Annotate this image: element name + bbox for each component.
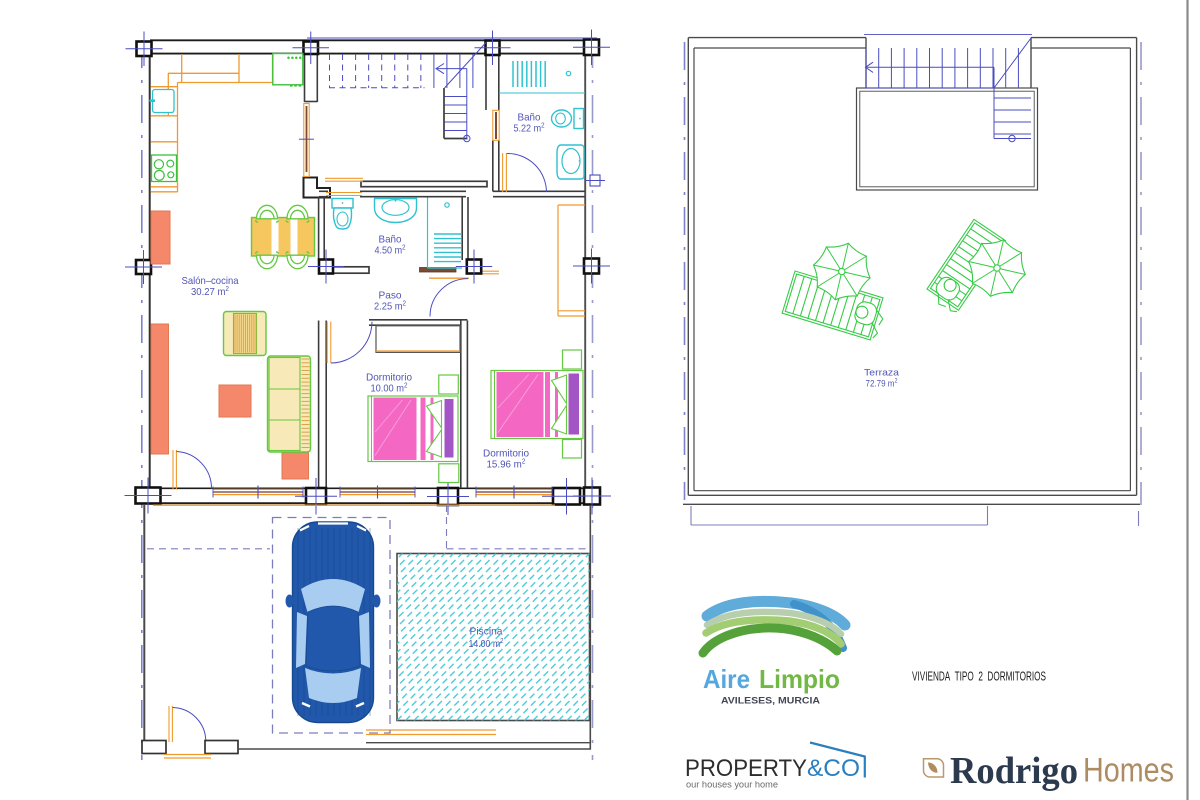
svg-text:Homes: Homes — [1083, 752, 1174, 790]
svg-text:Piscina: Piscina — [470, 626, 503, 638]
svg-text:30.27 m2: 30.27 m2 — [191, 285, 229, 298]
svg-text:&CO: &CO — [807, 755, 860, 782]
svg-text:5.22 m2: 5.22 m2 — [514, 122, 545, 135]
svg-text:2.25 m2: 2.25 m2 — [374, 300, 406, 313]
svg-text:Limpio: Limpio — [759, 664, 840, 694]
svg-text:our houses your home: our houses your home — [686, 780, 778, 791]
svg-text:14.00 m2: 14.00 m2 — [469, 636, 504, 650]
svg-text:Rodrigo: Rodrigo — [950, 750, 1078, 792]
svg-text:PROPERTY: PROPERTY — [685, 755, 807, 782]
svg-text:72.79 m2: 72.79 m2 — [866, 378, 898, 390]
svg-text:10.00 m2: 10.00 m2 — [371, 382, 408, 395]
svg-text:VIVIENDA TIPO 2 DORMITORIOS: VIVIENDA TIPO 2 DORMITORIOS — [912, 670, 1046, 684]
svg-text:4.50 m2: 4.50 m2 — [375, 244, 406, 257]
svg-text:Aire: Aire — [703, 664, 750, 694]
svg-text:AVILESES, MURCIA: AVILESES, MURCIA — [721, 696, 821, 706]
svg-text:15.96 m2: 15.96 m2 — [487, 458, 526, 471]
